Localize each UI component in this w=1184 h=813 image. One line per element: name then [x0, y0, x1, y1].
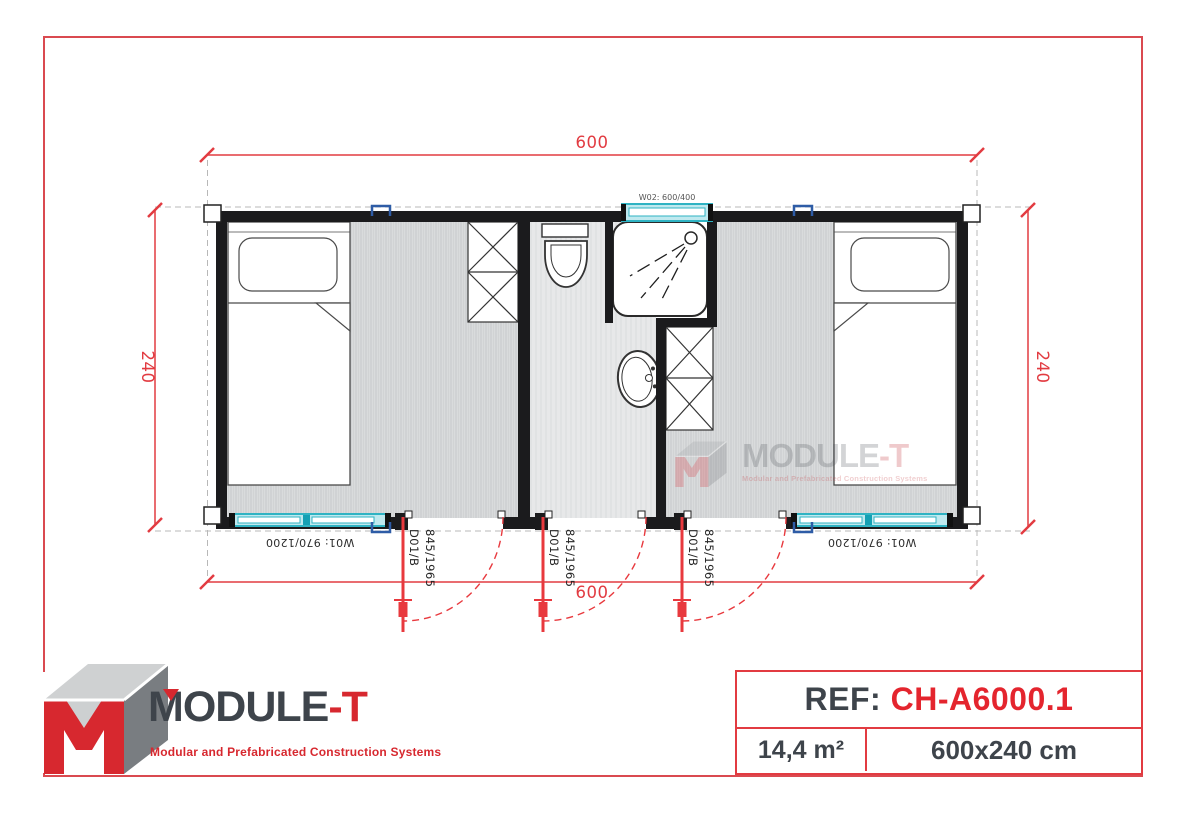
shower	[613, 222, 707, 316]
dimension-right: 240	[1032, 337, 1052, 397]
watermark-tagline: Modular and Prefabricated Construction S…	[742, 474, 928, 483]
brand-name: MODULE-T	[148, 682, 458, 732]
watermark-logo-icon	[672, 438, 734, 488]
bed-left	[228, 222, 350, 485]
ref-code: CH-A6000.1	[891, 681, 1074, 718]
dimension-left: 240	[137, 337, 157, 397]
dimension-top: 600	[520, 133, 664, 152]
page: 600 600 240 240 W01: 970/1200 W01: 970/1…	[0, 0, 1184, 813]
brand-watermark: MODULE-T Modular and Prefabricated Const…	[672, 438, 972, 504]
doors	[394, 517, 786, 632]
wardrobe-left	[468, 222, 518, 322]
door2-size: 845/1965	[563, 529, 577, 587]
brand-triangle-icon	[163, 689, 179, 701]
window-w02	[621, 204, 713, 221]
ref-label: REF:	[805, 681, 891, 718]
door1-code: D01/B	[407, 529, 421, 566]
door1-size: 845/1965	[423, 529, 437, 587]
window-label-w01-right: W01: 970/1200	[802, 536, 942, 549]
reference-row: REF: CH-A6000.1	[737, 672, 1141, 729]
window-label-w02: W02: 600/400	[607, 193, 727, 202]
dimension-bottom: 600	[520, 583, 664, 602]
area-value: 14,4 m²	[737, 729, 867, 771]
door3-code: D01/B	[686, 529, 700, 566]
window-w01-left	[229, 513, 391, 527]
door2-code: D01/B	[547, 529, 561, 566]
window-w01-right	[791, 513, 953, 527]
window-label-w01-left: W01: 970/1200	[240, 536, 380, 549]
brand-tagline: Modular and Prefabricated Construction S…	[150, 745, 470, 759]
door3-size: 845/1965	[702, 529, 716, 587]
wardrobe-right	[666, 327, 713, 430]
reference-box: REF: CH-A6000.1 14,4 m² 600x240 cm	[735, 670, 1143, 775]
size-value: 600x240 cm	[867, 729, 1141, 771]
watermark-brand: MODULE-T	[742, 438, 928, 474]
